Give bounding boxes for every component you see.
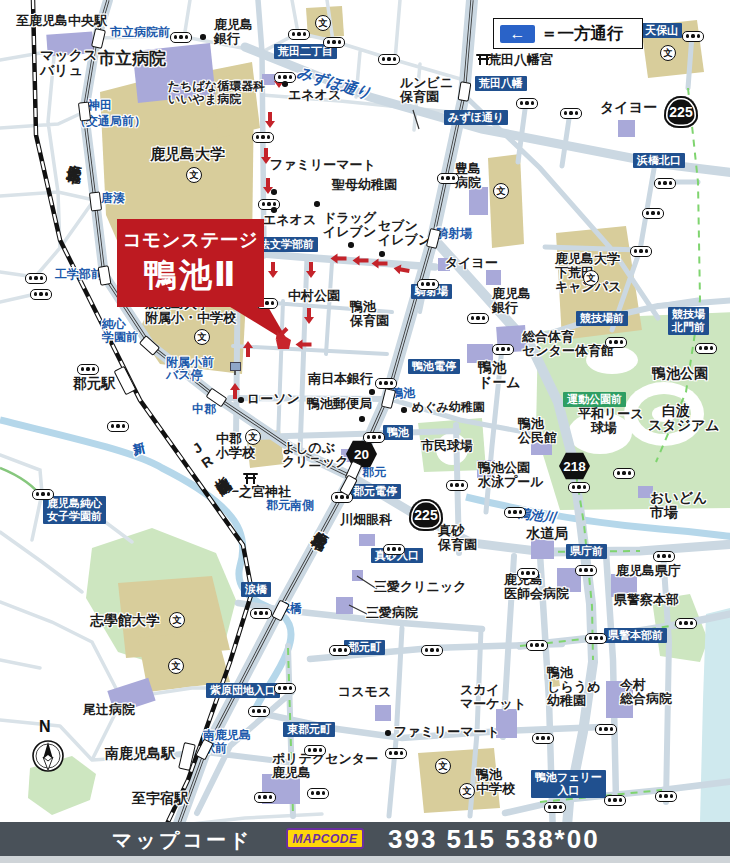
stop-fuzokusho-mae-bus: 附属小前 バス停 [166,356,214,382]
poi-arata-hachimangu: 荒田八幡宮 [488,53,553,67]
poi-kamoike-junior-high: 鴨池 中学校 [476,768,515,796]
stop-toso: 唐湊 [101,192,125,205]
line-shiden-lower: 鹿児島市電 [320,518,337,530]
traffic-light-icon [25,273,47,284]
one-way-arrow [371,259,388,269]
sign-kamoike-ferry: 鴨池フェリー 入口 [531,770,606,798]
sign-murasakibaru-danchi: 紫原団地入口 [206,683,280,698]
poi-cosmos: コスモス [338,685,391,699]
traffic-light-icon [575,565,597,576]
one-way-arrow [352,256,369,266]
poi-kagoshima-bank-2: 鹿児島 銀行 [492,287,531,315]
traffic-light-icon [492,344,514,355]
one-way-arrow-icon: ← [500,25,535,43]
poi-dot [401,407,407,413]
torii-icon [244,473,257,484]
site-banner-line2: 鴨池Ⅱ [117,253,264,298]
tram-stop-icon [97,265,111,285]
sign-junshin-joshi-gakuen: 鹿児島純心 女子学園前 [43,496,106,524]
poi-shiranami-stadium: 白波 スタジアム [648,403,720,433]
traffic-light-icon [568,482,590,493]
one-way-arrow [295,340,312,350]
sign-arata-hachiman: 荒田八幡 [475,76,527,91]
traffic-light-icon [77,364,99,375]
compass-north-label: N [39,718,51,736]
stop-junshin-gakuen-mae: 純心 学園前 [102,318,138,344]
poi-minami-kagoshima-sta: 南鹿児島駅 [105,746,175,761]
legend-label: ＝一方通行 [541,23,624,45]
tram-stop-icon [195,738,213,760]
poi-sogo-gym: 総合体育 センター体育館 [522,330,614,358]
poi-korimoto-sta: 郡元駅 [73,376,115,391]
poi-polytech-center: ポリテクセンター 鹿児島 [272,752,378,780]
poi-sky-market: スカイ マーケット [460,683,526,711]
traffic-light-icon [252,132,274,143]
tram-stop-icon [77,101,90,121]
sign-kamoike: 鴨池 [383,425,413,440]
poi-kamoike-pool: 鴨池公園 水泳プール [478,461,544,489]
poi-max-valu: マックス バリュ [40,48,97,78]
traffic-light-icon [32,489,54,500]
dest-kagoshima-chuo-sta: 至鹿児島中央駅 [16,14,107,28]
sign-namidabashi: 涙橋 [241,582,271,597]
school-icon: 文 [583,270,599,286]
traffic-light-icon [250,608,272,619]
bus-stop-icon [230,362,240,375]
traffic-light-icon [560,108,582,119]
traffic-light-icon [288,29,310,40]
poi-minami-nippon-bank: 南日本銀行 [308,372,373,386]
traffic-light-icon [323,37,345,48]
poi-dot [385,730,391,736]
school-icon: 文 [245,429,261,445]
poi-lumbini-nursery: ルンビニ 保育園 [400,76,453,104]
poi-nakamura-park: 中村公園 [288,289,340,303]
line-shiden-upper: 鹿児島市電 [67,152,84,159]
poi-pref-office: 鹿児島県庁 [616,564,681,578]
traffic-light-icon [107,421,129,432]
traffic-light-icon [421,645,443,656]
tram-stop-icon [138,335,159,356]
traffic-light-icon [446,480,468,491]
traffic-light-icon [254,792,276,803]
jr-station-icon [178,742,196,771]
poi-masago-nursery: 真砂 保育園 [438,524,477,552]
one-way-arrow [304,308,314,325]
traffic-light-icon [504,507,526,518]
traffic-light-icon [605,337,627,348]
stop-korimoto-minamigawa: 郡元南側 [266,499,314,512]
sign-hobungakubu-mae: 法文学部前 [255,237,318,252]
stop-korimoto: 郡元 [362,466,386,479]
sign-keikei-honbu-mae: 県警本部前 [604,628,667,643]
poi-kamoike-nursery: 鴨池 保育園 [350,300,389,328]
poi-city-hospital: 市立病院 [98,50,166,68]
traffic-light-icon [30,289,52,300]
poi-kamoike-dome: 鴨池 ドーム [478,360,521,390]
traffic-light-icon [642,208,664,219]
sign-higashi-korimoto-cho: 東郡元町 [283,722,335,737]
map-canvas: 至鹿児島中央駅マックス バリュ市立病院鹿児島 銀行たちばな循環器科 いいやま病院… [0,0,730,863]
poi-dot [348,242,354,248]
traffic-light-icon [385,748,407,759]
traffic-light-icon [604,795,626,806]
compass-rose: N [28,718,72,780]
school-icon: 文 [435,758,451,774]
poi-sanai-clinic: 三愛クリニック [374,580,467,594]
traffic-light-icon [613,468,635,479]
one-way-arrow [268,262,278,279]
footer-strip [0,856,730,863]
one-way-arrow [306,262,316,279]
traffic-light-icon [526,640,548,651]
poi-familymart-2: ファミリーマート [394,725,500,739]
one-way-arrow [392,263,410,276]
one-way-arrow [261,148,271,165]
poi-dot [271,207,277,213]
school-icon: 文 [194,329,210,345]
mapcode-label: マップコード [112,827,252,854]
poi-dot [379,251,385,257]
route-badge-225: 225 [409,499,443,531]
poi-dot [282,81,288,87]
school-icon: 文 [459,783,475,799]
poi-dot [314,201,320,207]
stop-kishaba: 騎射場 [436,227,472,240]
route-badge-218: 218 [559,452,590,480]
one-way-legend: ← ＝一方通行 [493,18,643,49]
traffic-light-icon [595,724,617,735]
traffic-light-icon [363,432,385,443]
traffic-light-icon [329,645,351,656]
traffic-light-icon [544,802,566,813]
compass-icon [28,736,72,780]
poi-taiyo-2: タイヨー [445,256,498,270]
traffic-light-icon [516,98,538,109]
one-way-arrow [243,340,253,357]
traffic-light-icon [675,618,697,629]
poi-kagoshima-bank-1: 鹿児島 銀行 [214,18,253,46]
poi-dot [238,397,244,403]
poi-kamoike-park: 鴨池公園 [652,366,708,381]
poi-kamoike-post-office: 鴨池郵便局 [307,397,372,411]
poi-kamoike-kominkan: 鴨池 公民館 [518,417,557,445]
poi-oidon-market: おいどん 市場 [650,490,707,520]
poi-otsuji-hospital: 尾辻病院 [83,703,135,717]
school-icon: 文 [169,612,185,628]
mapcode-logo: MAPCODE [286,828,364,849]
school-icon: 文 [493,183,509,199]
traffic-light-icon [655,791,677,802]
traffic-light-icon [304,745,326,756]
mapcode-value: 393 515 538*00 [388,824,600,855]
poi-seibo-kindergarten: 聖母幼稚園 [332,178,397,192]
poi-ichinomiya-shrine: 一之宮神社 [226,485,291,499]
poi-waterworks: 水道局 [526,526,568,541]
poi-megumi-kindergarten: めぐみ幼稚園 [412,401,485,414]
poi-lawson: ローソン [247,392,300,406]
tram-stop-icon [91,28,106,49]
jr-station-icon [114,366,137,396]
traffic-light-icon [695,343,717,354]
traffic-light-icon [274,683,296,694]
poi-tachibana-iiyama-hospital: たちばな循環器科 いいやま病院 [168,80,265,106]
stop-shiritsu-byoin-mae: 市立病院前 [110,26,170,39]
poi-pref-police-hq: 県警察本部 [614,593,679,607]
traffic-light-icon [248,706,270,717]
traffic-light-icon [654,178,676,189]
poi-drug-eleven: ドラッグ イレブン [323,211,376,239]
stop-kanda: 神田 [88,99,112,112]
school-icon: 文 [660,45,676,61]
traffic-light-icon [437,173,459,184]
poi-shigakukan-univ: 志學館大学 [90,613,160,628]
traffic-light-icon [375,378,397,389]
poi-heiwa-lease-stadium: 平和リース 球場 [578,407,644,435]
stop-nakagori: 中郡 [192,403,216,416]
sign-korimoto-densha: 郡元電停 [349,484,401,499]
poi-dot [271,189,277,195]
sign-tempozan: 天保山 [641,23,682,38]
torii-icon [477,54,490,65]
mapcode-bar: マップコード MAPCODE 393 515 538*00 [0,822,730,856]
poi-kagoshima-univ: 鹿児島大学 [150,146,225,162]
poi-taiyo-1: タイヨー [600,100,657,115]
route-badge-225: 225 [664,96,698,128]
sign-kencho-mae: 県庁前 [566,544,607,559]
sign-mizuho-dori: みずほ通り [444,110,508,125]
one-way-arrow [330,254,347,264]
poi-dot [369,389,375,395]
sign-hamabashi-kitaguchi: 浜橋北口 [633,153,685,168]
site-banner-line1: コモンステージ [117,227,264,252]
poi-dot [359,416,365,422]
sign-undo-koen-mae: 運動公園前 [563,392,626,407]
one-way-arrow [265,112,275,129]
tram-stop-icon [457,81,471,101]
school-icon: 文 [168,658,184,674]
traffic-light-icon [653,551,675,562]
poi-eneos-2: エネオス [263,213,316,227]
sign-kyogijo-kitamon-mae: 競技場 北門前 [668,307,709,335]
stop-kogakubu-mae: 工学部前 [55,268,103,281]
school-icon: 文 [186,167,202,183]
sign-kyogijo-mae: 競技場前 [576,311,628,326]
poi-sanai-hospital: 三愛病院 [366,606,418,620]
tram-stop-icon [88,191,101,211]
poi-shiraume-kindergarten: 鴨池 しらうめ 幼稚園 [547,666,600,708]
traffic-light-icon [532,733,554,744]
poi-dot [200,34,206,40]
traffic-light-icon [417,279,439,290]
poi-familymart-1: ファミリーマート [270,158,376,172]
poi-imamura-hospital: 今村 総合病院 [620,678,672,706]
tram-stop-icon [271,599,289,621]
one-way-arrow [271,325,290,344]
school-icon: 文 [315,15,331,31]
traffic-light-icon [585,633,607,644]
poi-shimin-stadium: 市民球場 [421,439,473,453]
traffic-light-icon [467,313,489,324]
dest-usuki-sta: 至宇宿駅 [132,791,188,806]
traffic-light-icon [682,31,704,42]
tram-stop-icon [380,387,395,408]
traffic-light-icon [170,32,192,43]
traffic-light-icon [378,54,400,65]
traffic-light-icon [307,788,329,799]
traffic-light-icon [517,568,539,579]
map-overlay: 至鹿児島中央駅マックス バリュ市立病院鹿児島 銀行たちばな循環器科 いいやま病院… [0,0,730,822]
river-shinkawa: 新川 [128,431,141,436]
poi-yoshinobu-clinic: よしのぶ クリニック [282,441,349,469]
traffic-light-icon [630,246,652,257]
site-banner: コモンステージ 鴨池Ⅱ [117,219,264,307]
sign-kamoike-densha: 鴨池電停 [408,359,460,374]
poi-seven-eleven: セブン イレブン [378,219,431,247]
traffic-light-icon [383,544,405,555]
poi-kawabata-eye-clinic: 川畑眼科 [340,513,392,527]
